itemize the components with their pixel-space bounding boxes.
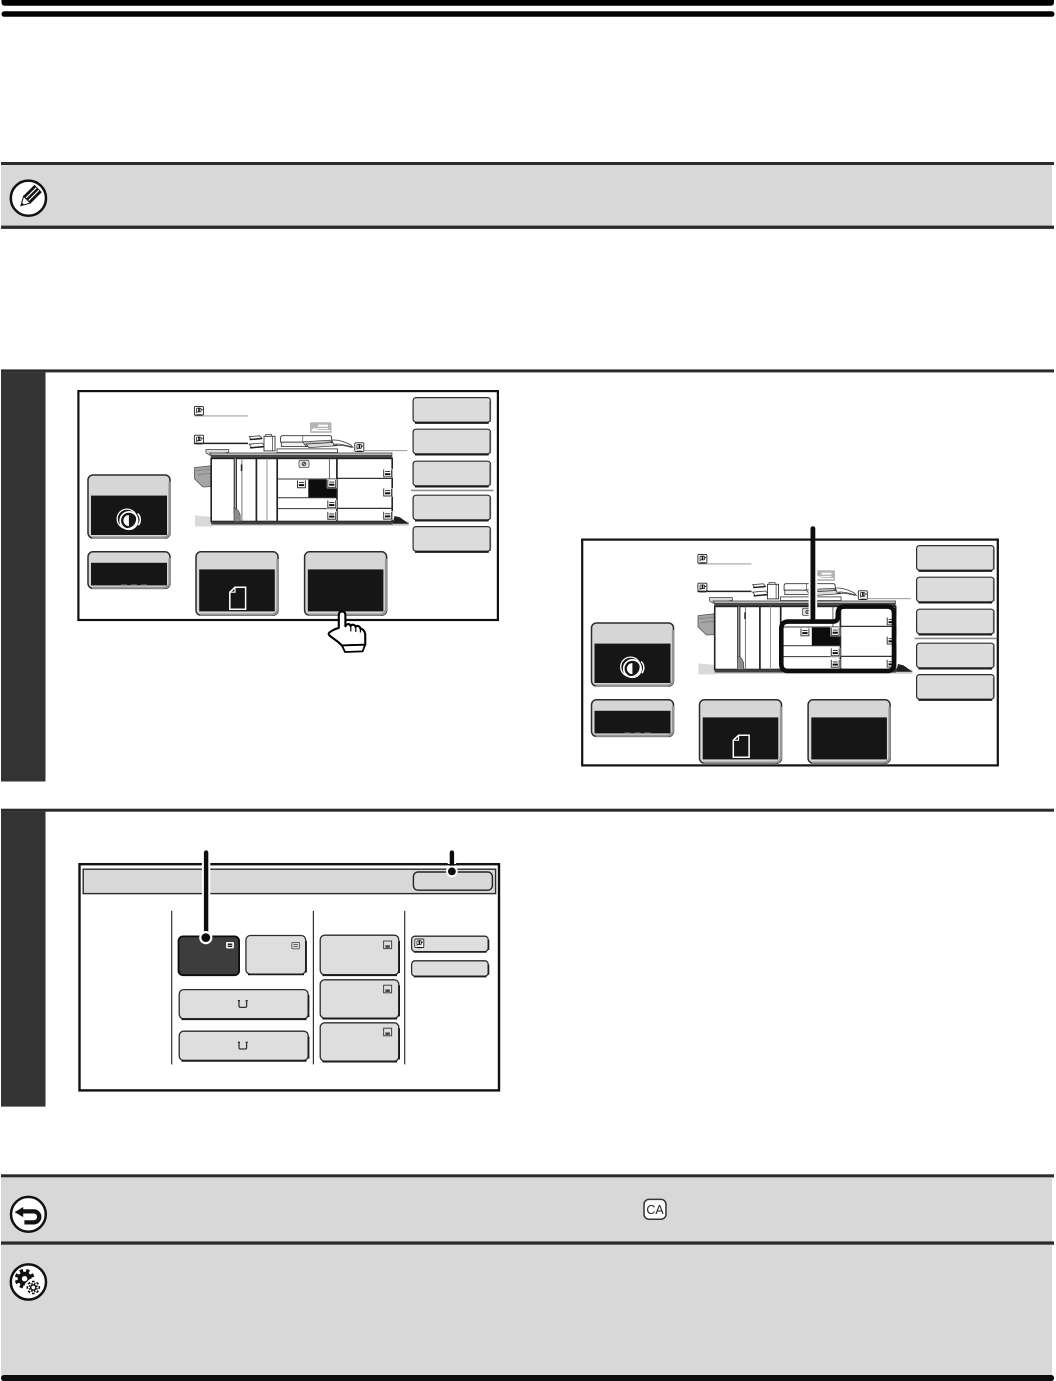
svg-text:CA: CA	[646, 1203, 664, 1217]
